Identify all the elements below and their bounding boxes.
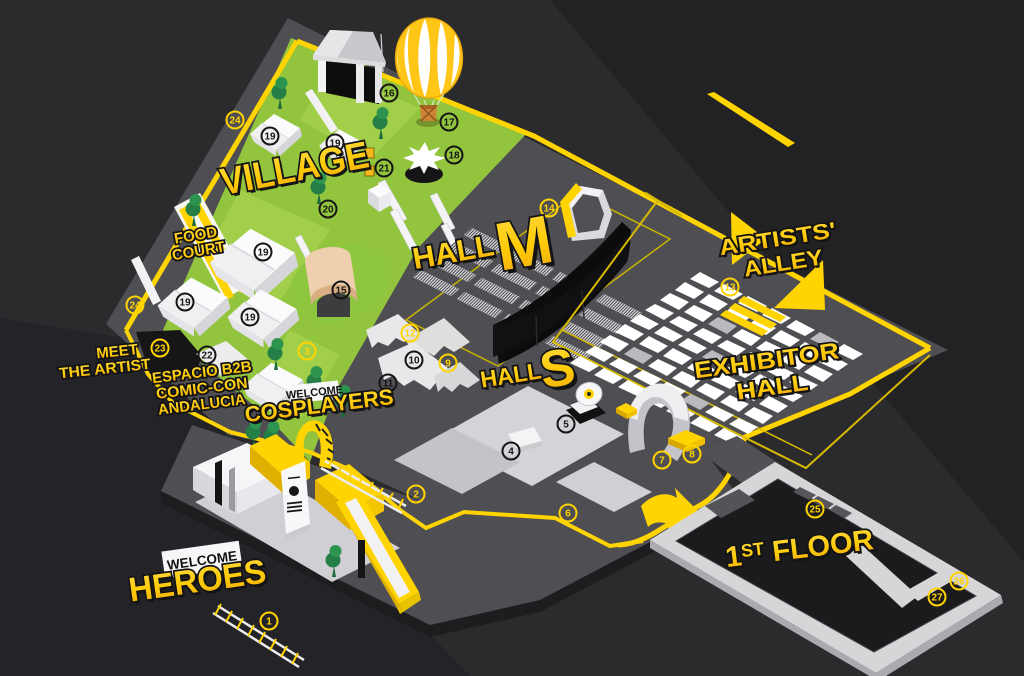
- svg-text:12: 12: [404, 329, 416, 340]
- svg-text:4: 4: [508, 447, 514, 458]
- svg-text:19: 19: [244, 313, 256, 324]
- svg-text:19: 19: [257, 248, 269, 259]
- svg-text:2: 2: [413, 490, 419, 501]
- svg-text:3: 3: [304, 347, 310, 358]
- svg-text:18: 18: [448, 151, 460, 162]
- svg-text:25: 25: [809, 505, 821, 516]
- svg-text:27: 27: [931, 593, 943, 604]
- svg-text:6: 6: [565, 509, 571, 520]
- svg-text:24: 24: [129, 301, 141, 312]
- svg-text:15: 15: [335, 286, 347, 297]
- svg-text:26: 26: [953, 577, 965, 588]
- svg-text:20: 20: [322, 205, 334, 216]
- svg-text:1: 1: [266, 617, 272, 628]
- svg-text:19: 19: [264, 132, 276, 143]
- svg-text:17: 17: [443, 118, 455, 129]
- svg-text:8: 8: [689, 450, 695, 461]
- svg-text:9: 9: [445, 359, 451, 370]
- svg-text:22: 22: [201, 351, 213, 362]
- svg-text:21: 21: [378, 164, 390, 175]
- svg-text:7: 7: [659, 456, 665, 467]
- svg-text:23: 23: [154, 344, 166, 355]
- svg-text:13: 13: [724, 283, 736, 294]
- svg-text:10: 10: [408, 356, 420, 367]
- svg-text:24: 24: [229, 116, 241, 127]
- svg-text:5: 5: [563, 420, 569, 431]
- svg-text:16: 16: [383, 89, 395, 100]
- svg-text:19: 19: [179, 298, 191, 309]
